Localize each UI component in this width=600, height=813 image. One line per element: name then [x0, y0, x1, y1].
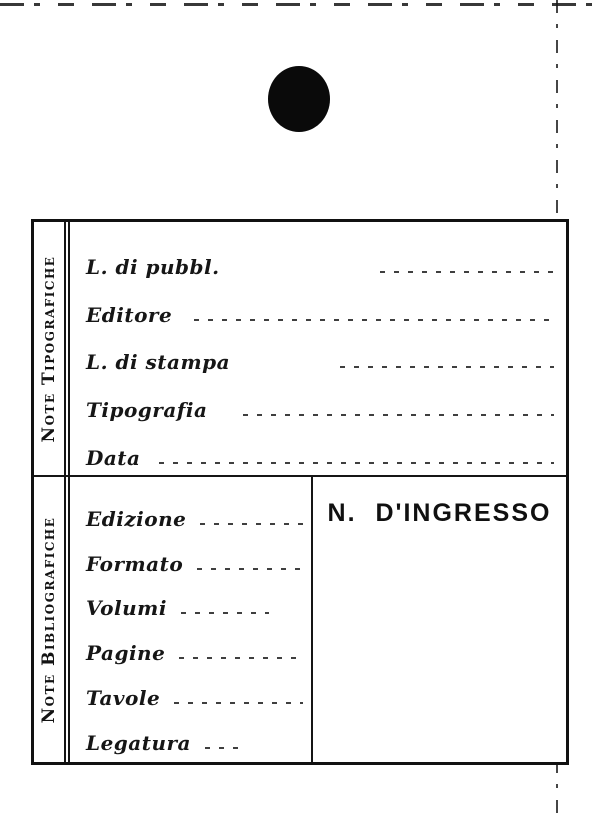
catalog-card: Note Tipografiche L. di pubbl. Editore L… [31, 219, 569, 765]
tipografiche-fields: L. di pubbl. Editore L. di stampa Tipogr… [70, 222, 566, 475]
field-row-tavole: Tavole [86, 664, 303, 709]
field-label: Data [86, 448, 141, 469]
punch-hole-icon [268, 66, 330, 132]
section-label-bibliografiche: Note Bibliografiche [34, 477, 64, 762]
section-label-tipografiche: Note Tipografiche [34, 222, 64, 475]
field-row-editore: Editore [86, 278, 554, 326]
dotted-fill-line [340, 366, 554, 368]
field-row-volumi: Volumi [86, 575, 303, 620]
field-row-l-di-stampa: L. di stampa [86, 326, 554, 374]
dotted-fill-line [174, 702, 303, 704]
dotted-fill-line [197, 568, 303, 570]
field-row-legatura: Legatura [86, 709, 303, 754]
accession-number-cell: N. D'INGRESSO [313, 477, 566, 762]
torn-edge-dashed-line [0, 3, 600, 6]
field-label: Tipografia [86, 400, 207, 421]
dotted-fill-line [380, 271, 554, 273]
field-label: Edizione [86, 509, 186, 530]
dotted-fill-line [181, 612, 269, 614]
section-label-text: Note Tipografiche [39, 255, 59, 442]
dotted-fill-line [179, 657, 303, 659]
field-label: Pagine [86, 643, 165, 664]
dotted-fill-line [159, 462, 555, 464]
field-row-formato: Formato [86, 530, 303, 575]
dotted-fill-line [194, 319, 554, 321]
field-label: L. di pubbl. [86, 257, 220, 278]
field-label: Legatura [86, 733, 191, 754]
dotted-fill-line [205, 747, 243, 749]
field-row-edizione: Edizione [86, 485, 303, 530]
field-label: Editore [86, 305, 172, 326]
field-row-data: Data [86, 421, 554, 469]
section-label-text: Note Bibliografiche [39, 516, 59, 723]
field-label: Tavole [86, 688, 160, 709]
field-label: Formato [86, 554, 183, 575]
field-row-l-di-pubbl: L. di pubbl. [86, 230, 554, 278]
dotted-fill-line [200, 523, 303, 525]
dotted-fill-line [243, 414, 554, 416]
bibliografiche-fields: Edizione Formato Volumi Pagine Tavole Le… [70, 477, 311, 762]
accession-number-title: N. D'INGRESSO [313, 499, 566, 528]
field-label: L. di stampa [86, 352, 230, 373]
field-row-tipografia: Tipografia [86, 373, 554, 421]
field-label: Volumi [86, 598, 167, 619]
field-row-pagine: Pagine [86, 619, 303, 664]
